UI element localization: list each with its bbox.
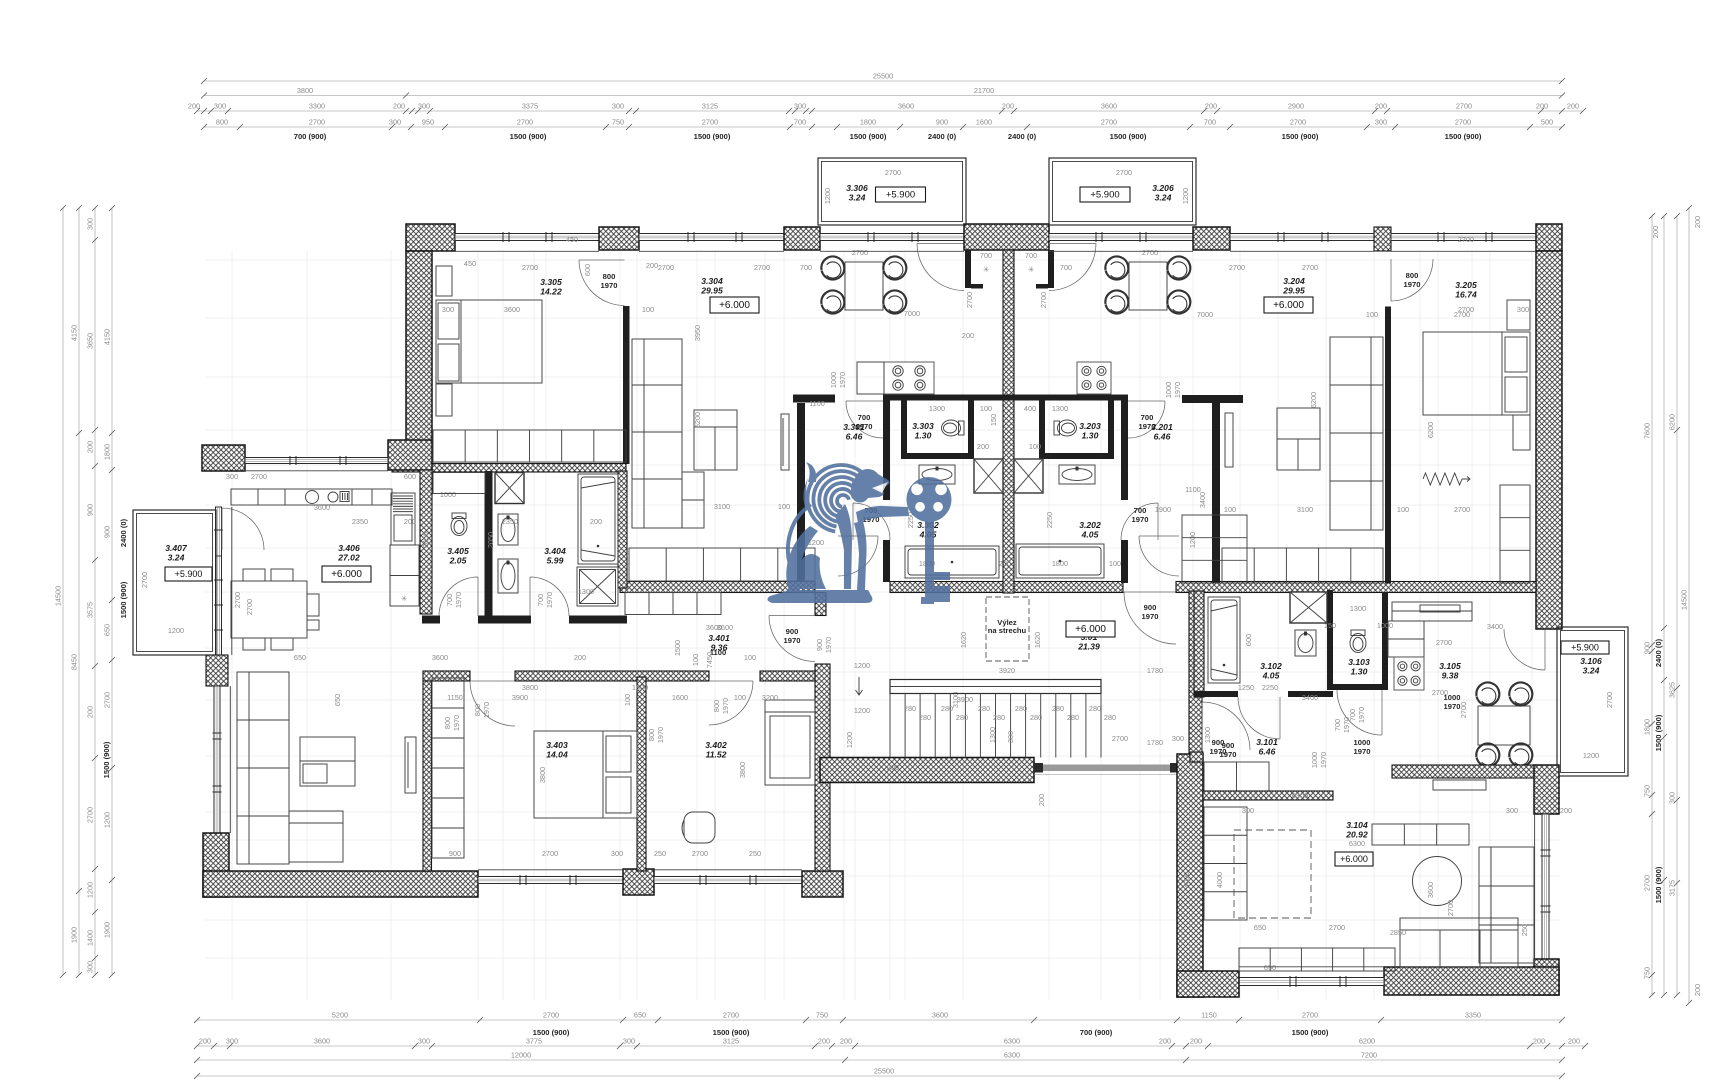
svg-text:2700: 2700 [309, 118, 325, 127]
svg-text:1500 (900): 1500 (900) [119, 581, 128, 618]
svg-text:200: 200 [646, 261, 658, 270]
svg-text:1300: 1300 [1350, 604, 1366, 613]
svg-text:200: 200 [999, 559, 1011, 568]
svg-text:700: 700 [1060, 263, 1072, 272]
svg-text:3125: 3125 [702, 102, 718, 111]
svg-text:3.30429.95: 3.30429.95 [700, 276, 723, 296]
svg-text:2050: 2050 [486, 532, 495, 548]
svg-text:2700: 2700 [1458, 305, 1474, 314]
svg-text:3625: 3625 [1668, 682, 1677, 698]
svg-text:2700: 2700 [1290, 118, 1306, 127]
svg-text:100: 100 [1029, 442, 1041, 451]
svg-text:1970: 1970 [1342, 717, 1351, 733]
svg-text:2700: 2700 [965, 292, 974, 308]
svg-text:1300: 1300 [1203, 727, 1212, 743]
svg-text:✳: ✳ [1028, 265, 1034, 274]
svg-text:25500: 25500 [874, 1067, 894, 1076]
svg-text:3350: 3350 [1465, 1011, 1481, 1020]
svg-text:1970: 1970 [1354, 747, 1371, 756]
svg-text:100: 100 [1109, 559, 1121, 568]
svg-text:3.4045.99: 3.4045.99 [544, 546, 566, 566]
svg-text:3375: 3375 [522, 102, 538, 111]
svg-text:1800: 1800 [103, 444, 112, 460]
svg-text:900: 900 [815, 639, 824, 651]
svg-text:3900: 3900 [512, 693, 528, 702]
svg-text:3.10420.92: 3.10420.92 [1345, 820, 1368, 840]
svg-text:200: 200 [962, 331, 974, 340]
svg-text:2700: 2700 [1229, 263, 1245, 272]
svg-text:1970: 1970 [545, 592, 554, 608]
svg-text:250: 250 [749, 849, 761, 858]
svg-text:2700: 2700 [542, 849, 558, 858]
svg-text:200: 200 [393, 102, 405, 111]
svg-text:1970: 1970 [482, 702, 491, 718]
svg-text:1970: 1970 [454, 592, 463, 608]
svg-text:280: 280 [1067, 713, 1079, 722]
svg-text:+6.000: +6.000 [1340, 854, 1368, 864]
svg-text:1900: 1900 [103, 922, 112, 938]
svg-text:700: 700 [1025, 251, 1037, 260]
svg-text:200: 200 [1567, 102, 1579, 111]
svg-text:3125: 3125 [723, 1037, 739, 1046]
svg-text:1620: 1620 [1033, 632, 1042, 648]
svg-text:3.40627.02: 3.40627.02 [337, 543, 360, 563]
svg-text:1300: 1300 [578, 587, 594, 596]
svg-text:300: 300 [611, 849, 623, 858]
svg-text:3920: 3920 [999, 666, 1015, 675]
svg-text:3.3031.30: 3.3031.30 [912, 421, 934, 441]
svg-text:1600: 1600 [672, 693, 688, 702]
svg-text:300: 300 [1375, 118, 1387, 127]
svg-text:900: 900 [1144, 603, 1157, 612]
svg-text:200: 200 [86, 441, 95, 453]
svg-text:600: 600 [404, 472, 416, 481]
svg-text:6300: 6300 [1292, 791, 1308, 800]
svg-text:3800: 3800 [522, 683, 538, 692]
svg-text:900: 900 [936, 118, 948, 127]
svg-text:+6.000: +6.000 [1075, 624, 1106, 635]
svg-text:1970: 1970 [1357, 707, 1366, 723]
svg-text:6200: 6200 [1359, 1037, 1375, 1046]
svg-text:2700: 2700 [1605, 692, 1614, 708]
svg-text:600: 600 [583, 264, 592, 276]
svg-text:2700: 2700 [1116, 168, 1132, 177]
svg-text:2700: 2700 [1039, 292, 1048, 308]
svg-text:100: 100 [623, 694, 632, 706]
svg-text:300: 300 [1172, 734, 1184, 743]
svg-text:280: 280 [993, 713, 1005, 722]
svg-text:2350: 2350 [502, 517, 518, 526]
svg-text:100: 100 [1224, 505, 1236, 514]
svg-text:1500 (900): 1500 (900) [694, 132, 731, 141]
svg-text:2700: 2700 [1329, 923, 1345, 932]
svg-text:900: 900 [786, 627, 799, 636]
svg-text:1400: 1400 [86, 930, 95, 946]
svg-text:2400 (0): 2400 (0) [119, 518, 128, 547]
svg-text:3800: 3800 [738, 762, 747, 778]
svg-text:2700: 2700 [245, 599, 254, 615]
svg-text:2700: 2700 [1302, 1011, 1318, 1020]
svg-text:1970: 1970 [838, 372, 847, 388]
svg-text:800: 800 [647, 729, 656, 741]
svg-text:280: 280 [1089, 704, 1101, 713]
svg-text:700: 700 [445, 594, 454, 606]
svg-text:1970: 1970 [1142, 612, 1159, 621]
svg-text:200: 200 [1190, 1037, 1202, 1046]
svg-text:2700: 2700 [1454, 505, 1470, 514]
svg-text:750: 750 [816, 1011, 828, 1020]
svg-text:3.1031.30: 3.1031.30 [1348, 657, 1370, 677]
svg-text:300: 300 [1506, 806, 1518, 815]
svg-text:700: 700 [858, 413, 871, 422]
svg-text:1200: 1200 [823, 188, 832, 204]
svg-text:1000: 1000 [829, 372, 838, 388]
svg-text:6200: 6200 [1309, 392, 1318, 408]
svg-text:2850: 2850 [1390, 928, 1406, 937]
svg-text:2700: 2700 [543, 1011, 559, 1020]
svg-text:1970: 1970 [601, 281, 618, 290]
svg-text:200: 200 [887, 763, 899, 772]
svg-text:700: 700 [1141, 413, 1154, 422]
svg-text:700: 700 [1333, 719, 1342, 731]
svg-text:300: 300 [612, 102, 624, 111]
svg-text:3400: 3400 [1198, 492, 1207, 508]
svg-text:280: 280 [1015, 704, 1027, 713]
svg-text:3100: 3100 [714, 502, 730, 511]
svg-text:3300: 3300 [309, 102, 325, 111]
svg-text:2700: 2700 [1436, 638, 1452, 647]
svg-text:✳: ✳ [983, 265, 989, 274]
svg-text:2700: 2700 [1142, 248, 1158, 257]
svg-text:100: 100 [642, 305, 654, 314]
svg-text:2700: 2700 [1458, 235, 1474, 244]
svg-text:750: 750 [612, 118, 624, 127]
svg-text:1500 (900): 1500 (900) [1292, 1028, 1329, 1037]
svg-text:1970: 1970 [824, 637, 833, 653]
svg-text:200: 200 [840, 1037, 852, 1046]
svg-text:2350: 2350 [352, 517, 368, 526]
svg-text:300: 300 [418, 1037, 430, 1046]
svg-text:100: 100 [691, 654, 700, 666]
svg-text:200: 200 [1651, 226, 1660, 238]
svg-text:1800: 1800 [1643, 719, 1652, 735]
svg-text:3.1059.38: 3.1059.38 [1439, 661, 1461, 681]
svg-text:2700: 2700 [1302, 263, 1318, 272]
svg-text:4150: 4150 [70, 325, 79, 341]
svg-text:1100: 1100 [809, 399, 825, 408]
svg-text:1500: 1500 [673, 640, 682, 656]
svg-text:800: 800 [473, 704, 482, 716]
svg-text:3575: 3575 [86, 602, 95, 618]
svg-text:1970: 1970 [721, 698, 730, 714]
svg-text:3.3063.24: 3.3063.24 [846, 183, 868, 203]
svg-text:250: 250 [654, 849, 666, 858]
svg-text:1970: 1970 [1173, 382, 1182, 398]
svg-text:2700: 2700 [522, 263, 538, 272]
svg-text:200: 200 [818, 1037, 830, 1046]
svg-text:1200: 1200 [854, 706, 870, 715]
svg-text:300: 300 [214, 102, 226, 111]
svg-text:6200: 6200 [693, 412, 702, 428]
svg-text:1200: 1200 [103, 812, 112, 828]
svg-text:900: 900 [103, 526, 112, 538]
svg-text:2700: 2700 [658, 263, 674, 272]
svg-text:3600: 3600 [314, 1037, 330, 1046]
svg-text:1900: 1900 [70, 927, 79, 943]
svg-text:4000: 4000 [1215, 872, 1224, 888]
svg-text:2250: 2250 [1262, 683, 1278, 692]
svg-text:4000: 4000 [1182, 872, 1191, 888]
svg-text:2700: 2700 [1446, 900, 1455, 916]
svg-text:650: 650 [1254, 923, 1266, 932]
svg-text:3.40314.04: 3.40314.04 [546, 740, 568, 760]
svg-text:3.2031.30: 3.2031.30 [1079, 421, 1101, 441]
svg-text:2050: 2050 [421, 532, 430, 548]
svg-text:3600: 3600 [932, 1011, 948, 1020]
svg-text:300: 300 [389, 118, 401, 127]
svg-text:900: 900 [1643, 642, 1652, 654]
svg-text:1970: 1970 [1319, 752, 1328, 768]
svg-text:300: 300 [623, 1037, 635, 1046]
svg-text:1000: 1000 [1164, 382, 1173, 398]
svg-text:280: 280 [904, 704, 916, 713]
svg-text:1600: 1600 [976, 118, 992, 127]
svg-text:2700: 2700 [517, 118, 533, 127]
svg-text:250: 250 [1520, 924, 1529, 936]
svg-text:1500 (900): 1500 (900) [850, 132, 887, 141]
svg-text:2700: 2700 [1455, 118, 1471, 127]
svg-text:100: 100 [980, 404, 992, 413]
svg-text:200: 200 [574, 653, 586, 662]
svg-text:1150: 1150 [1201, 1011, 1217, 1020]
svg-text:200: 200 [1693, 216, 1702, 228]
svg-text:1500 (900): 1500 (900) [510, 132, 547, 141]
svg-text:1500 (900): 1500 (900) [1110, 132, 1147, 141]
svg-text:100: 100 [734, 693, 746, 702]
svg-text:1800: 1800 [860, 118, 876, 127]
svg-text:200: 200 [1533, 1037, 1545, 1046]
svg-text:2700: 2700 [251, 472, 267, 481]
svg-text:1970: 1970 [1444, 702, 1461, 711]
svg-text:1970: 1970 [452, 715, 461, 731]
svg-text:2900: 2900 [1288, 102, 1304, 111]
svg-text:300: 300 [226, 472, 238, 481]
svg-text:1150: 1150 [447, 693, 463, 702]
svg-text:6200: 6200 [1668, 414, 1677, 430]
svg-text:2700: 2700 [233, 592, 242, 608]
svg-text:2400 (0): 2400 (0) [1654, 638, 1663, 667]
svg-text:7000: 7000 [904, 309, 920, 318]
svg-text:2700: 2700 [885, 168, 901, 177]
svg-text:750: 750 [1643, 967, 1652, 979]
svg-text:1000: 1000 [1354, 738, 1371, 747]
svg-text:1200: 1200 [845, 732, 854, 748]
svg-text:1000: 1000 [1377, 621, 1393, 630]
svg-text:200: 200 [1037, 794, 1046, 806]
svg-text:280: 280 [1030, 713, 1042, 722]
svg-text:6300: 6300 [1004, 1037, 1020, 1046]
svg-text:2400 (0): 2400 (0) [1008, 132, 1037, 141]
svg-text:3400: 3400 [1487, 622, 1503, 631]
svg-text:150: 150 [989, 414, 998, 426]
svg-text:700: 700 [980, 251, 992, 260]
svg-text:300: 300 [1517, 305, 1529, 314]
svg-text:650: 650 [294, 653, 306, 662]
svg-text:1600: 1600 [632, 683, 648, 692]
svg-text:1200: 1200 [1583, 751, 1599, 760]
svg-text:300: 300 [794, 102, 806, 111]
svg-text:700: 700 [1134, 506, 1147, 515]
svg-text:280: 280 [1052, 704, 1064, 713]
svg-text:5200: 5200 [332, 1011, 348, 1020]
svg-text:+5.900: +5.900 [1090, 190, 1119, 201]
svg-text:+6.000: +6.000 [719, 300, 750, 311]
svg-text:450: 450 [464, 259, 476, 268]
svg-text:300: 300 [418, 102, 430, 111]
svg-text:3.2024.05: 3.2024.05 [1079, 520, 1101, 540]
svg-text:700 (900): 700 (900) [1080, 1028, 1113, 1037]
svg-text:1780: 1780 [1147, 738, 1163, 747]
svg-text:280: 280 [978, 704, 990, 713]
svg-text:✳: ✳ [401, 594, 407, 603]
svg-text:200: 200 [1002, 102, 1014, 111]
svg-text:3.3016.46: 3.3016.46 [843, 422, 865, 442]
svg-text:700: 700 [1204, 118, 1216, 127]
svg-text:3400: 3400 [1302, 693, 1318, 702]
svg-text:1200: 1200 [1181, 188, 1190, 204]
svg-text:14500: 14500 [1680, 590, 1689, 610]
svg-text:3600: 3600 [1426, 882, 1435, 898]
svg-text:800: 800 [216, 118, 228, 127]
svg-text:3100: 3100 [1297, 505, 1313, 514]
svg-text:900: 900 [1212, 738, 1225, 747]
svg-text:3800: 3800 [297, 86, 313, 95]
svg-text:+6.000: +6.000 [331, 569, 362, 580]
svg-text:4150: 4150 [103, 329, 112, 345]
svg-text:1900: 1900 [1155, 505, 1171, 514]
svg-text:3.40211.52: 3.40211.52 [705, 740, 727, 760]
svg-text:200: 200 [1560, 806, 1572, 815]
svg-text:200: 200 [86, 706, 95, 718]
svg-text:300: 300 [442, 305, 454, 314]
svg-text:650: 650 [103, 624, 112, 636]
svg-text:3650: 3650 [86, 333, 95, 349]
svg-text:450: 450 [566, 235, 578, 244]
svg-text:8450: 8450 [70, 654, 79, 670]
svg-text:1970: 1970 [1132, 515, 1149, 524]
svg-text:2700: 2700 [702, 118, 718, 127]
svg-text:1800: 1800 [1052, 559, 1068, 568]
svg-text:2700: 2700 [103, 692, 112, 708]
svg-text:200: 200 [404, 517, 416, 526]
svg-text:3600: 3600 [432, 653, 448, 662]
svg-text:200: 200 [1375, 102, 1387, 111]
svg-text:3.4019.36: 3.4019.36 [708, 633, 730, 653]
svg-text:1300: 1300 [1052, 404, 1068, 413]
svg-text:2700: 2700 [1643, 875, 1652, 891]
svg-text:1970: 1970 [656, 727, 665, 743]
svg-text:900: 900 [449, 849, 461, 858]
svg-text:200: 200 [1568, 1037, 1580, 1046]
svg-text:3.30514.22: 3.30514.22 [540, 277, 562, 297]
svg-text:200: 200 [977, 442, 989, 451]
svg-text:3600: 3600 [1101, 102, 1117, 111]
svg-text:200: 200 [1205, 102, 1217, 111]
svg-text:3200: 3200 [762, 693, 778, 702]
svg-text:1200: 1200 [86, 882, 95, 898]
svg-text:1500 (900): 1500 (900) [102, 741, 111, 778]
svg-text:280: 280 [941, 704, 953, 713]
svg-text:2700: 2700 [852, 248, 868, 257]
svg-text:2250: 2250 [1045, 512, 1054, 528]
svg-text:200: 200 [199, 1037, 211, 1046]
svg-text:3800: 3800 [538, 767, 547, 783]
svg-text:200: 200 [1536, 102, 1548, 111]
svg-text:800: 800 [603, 272, 616, 281]
svg-text:14500: 14500 [54, 586, 63, 606]
svg-text:600: 600 [1244, 634, 1253, 646]
svg-text:+6.000: +6.000 [1273, 300, 1304, 311]
svg-text:+5.900: +5.900 [886, 190, 915, 201]
svg-text:100: 100 [1397, 505, 1409, 514]
svg-text:950: 950 [422, 118, 434, 127]
svg-text:3.1063.24: 3.1063.24 [1580, 656, 1602, 676]
svg-text:3600: 3600 [898, 102, 914, 111]
svg-text:1970: 1970 [1404, 280, 1421, 289]
svg-text:400: 400 [1024, 404, 1036, 413]
svg-text:12000: 12000 [511, 1051, 531, 1060]
svg-text:700: 700 [800, 263, 812, 272]
svg-text:3950: 3950 [693, 325, 702, 341]
svg-text:3600: 3600 [314, 503, 330, 512]
svg-text:300: 300 [86, 218, 95, 230]
svg-text:750: 750 [1643, 785, 1652, 797]
svg-text:2700: 2700 [754, 263, 770, 272]
svg-text:200: 200 [188, 102, 200, 111]
svg-text:1000: 1000 [440, 490, 456, 499]
svg-text:200: 200 [1159, 1037, 1171, 1046]
svg-text:500: 500 [1541, 118, 1553, 127]
svg-text:1000: 1000 [1444, 693, 1461, 702]
svg-text:700 (900): 700 (900) [294, 132, 327, 141]
svg-text:1200: 1200 [854, 661, 870, 670]
svg-text:100: 100 [778, 502, 790, 511]
svg-text:3.1016.46: 3.1016.46 [1256, 737, 1278, 757]
svg-text:2700: 2700 [1101, 118, 1117, 127]
svg-text:1300: 1300 [929, 404, 945, 413]
svg-text:7000: 7000 [1197, 310, 1213, 319]
svg-text:280: 280 [919, 713, 931, 722]
svg-text:700: 700 [794, 118, 806, 127]
svg-text:200: 200 [590, 517, 602, 526]
svg-text:650: 650 [1264, 963, 1276, 972]
svg-text:3900: 3900 [957, 695, 973, 704]
svg-text:300: 300 [1006, 731, 1015, 743]
svg-text:6300: 6300 [1004, 1051, 1020, 1060]
svg-text:3775: 3775 [526, 1037, 542, 1046]
svg-text:25500: 25500 [873, 72, 893, 81]
svg-text:3.2016.46: 3.2016.46 [1151, 422, 1173, 442]
svg-text:3600: 3600 [504, 305, 520, 314]
svg-text:2700: 2700 [723, 1011, 739, 1020]
svg-text:3.20429.95: 3.20429.95 [1282, 276, 1305, 296]
svg-text:7600: 7600 [1643, 423, 1652, 439]
svg-text:650: 650 [333, 694, 342, 706]
svg-text:1620: 1620 [959, 632, 968, 648]
svg-text:650: 650 [634, 1011, 646, 1020]
svg-text:6300: 6300 [1349, 839, 1365, 848]
svg-text:3175: 3175 [1668, 880, 1677, 896]
